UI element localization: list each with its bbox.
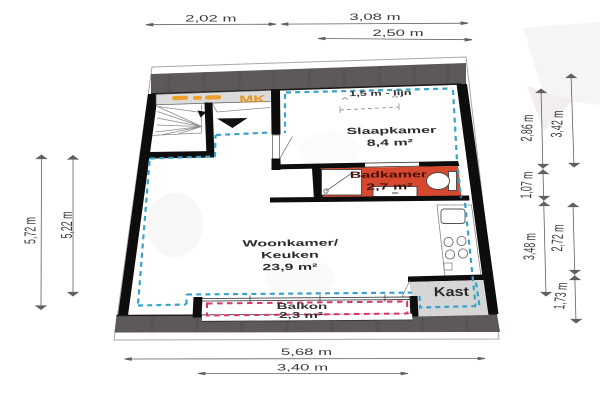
svg-text:8,4 m²: 8,4 m² — [367, 137, 415, 148]
svg-text:5,22 m: 5,22 m — [57, 212, 75, 239]
svg-text:2,02 m: 2,02 m — [185, 13, 236, 23]
svg-text:Badkamer: Badkamer — [350, 169, 428, 180]
svg-text:Keuken: Keuken — [261, 249, 319, 260]
svg-text:Woonkamer/: Woonkamer/ — [242, 237, 338, 248]
svg-text:1,73 m: 1,73 m — [549, 282, 571, 310]
svg-text:1,5 m - lijn: 1,5 m - lijn — [349, 89, 412, 98]
svg-text:3,40 m: 3,40 m — [277, 362, 328, 372]
svg-text:2,50 m: 2,50 m — [372, 27, 423, 37]
svg-text:3,08 m: 3,08 m — [349, 12, 400, 22]
svg-text:2,3 m²: 2,3 m² — [279, 310, 323, 320]
svg-text:3,42 m: 3,42 m — [547, 110, 567, 137]
svg-text:5,68 m: 5,68 m — [281, 346, 332, 356]
svg-text:3,48 m: 3,48 m — [519, 233, 539, 260]
svg-text:2,72 m: 2,72 m — [547, 224, 567, 251]
svg-text:MK: MK — [239, 93, 266, 105]
svg-text:1,07 m: 1,07 m — [516, 171, 536, 198]
svg-text:23,9 m²: 23,9 m² — [262, 261, 318, 272]
svg-text:2,86 m: 2,86 m — [517, 114, 537, 141]
svg-text:Slaapkamer: Slaapkamer — [346, 125, 436, 137]
svg-text:5,72 m: 5,72 m — [21, 217, 39, 244]
svg-text:2,7 m²: 2,7 m² — [366, 181, 413, 192]
svg-text:Kast: Kast — [434, 285, 470, 300]
